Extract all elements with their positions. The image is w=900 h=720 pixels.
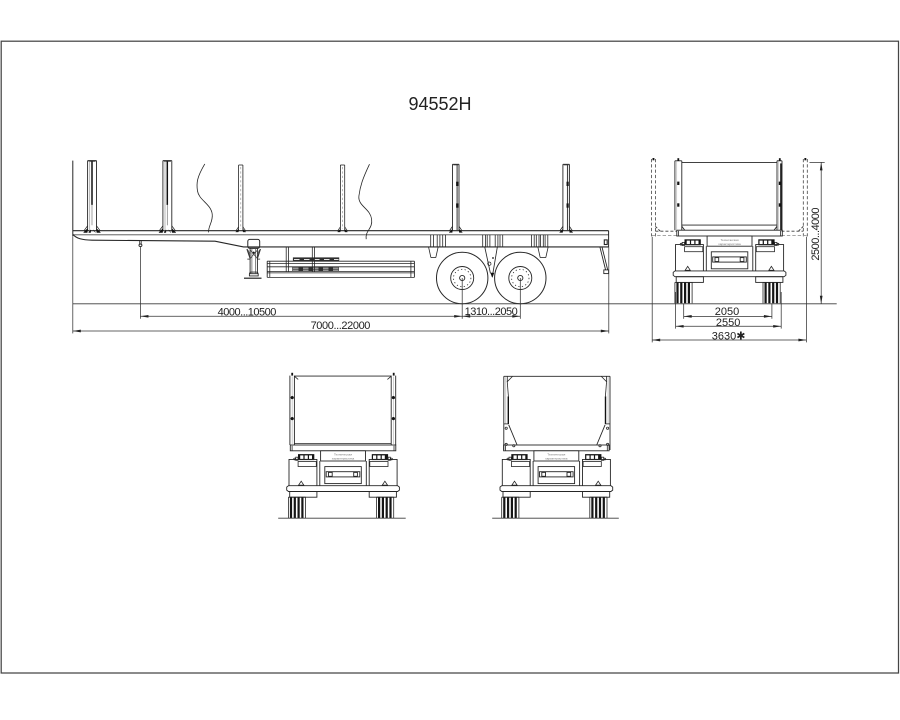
svg-text:4000...10500: 4000...10500 (218, 306, 277, 318)
svg-text:характеристика: характеристика (545, 457, 568, 461)
svg-text:характеристика: характеристика (718, 242, 741, 246)
svg-text:2050: 2050 (715, 306, 739, 318)
svg-text:1310...2050: 1310...2050 (465, 306, 518, 318)
svg-text:характеристика: характеристика (332, 457, 355, 461)
svg-text:2550: 2550 (716, 317, 740, 329)
svg-text:7000...22000: 7000...22000 (311, 320, 371, 332)
svg-text:2500...4000: 2500...4000 (810, 208, 822, 261)
svg-text:94552H: 94552H (408, 94, 471, 114)
svg-text:3630✱: 3630✱ (712, 331, 746, 343)
